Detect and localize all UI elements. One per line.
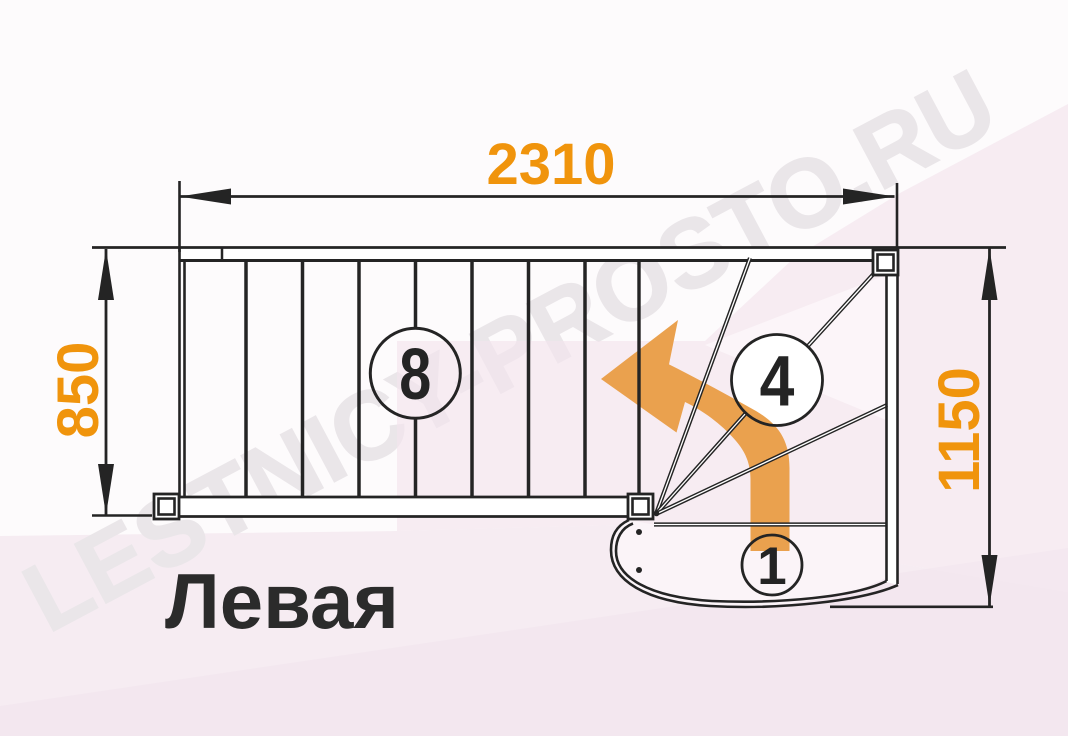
svg-text:2310: 2310 — [486, 132, 615, 197]
svg-text:1150: 1150 — [927, 367, 992, 493]
svg-text:8: 8 — [399, 334, 431, 415]
svg-text:4: 4 — [760, 342, 795, 422]
svg-text:850: 850 — [46, 342, 111, 439]
svg-text:1: 1 — [757, 537, 786, 596]
svg-text:Левая: Левая — [165, 557, 399, 645]
